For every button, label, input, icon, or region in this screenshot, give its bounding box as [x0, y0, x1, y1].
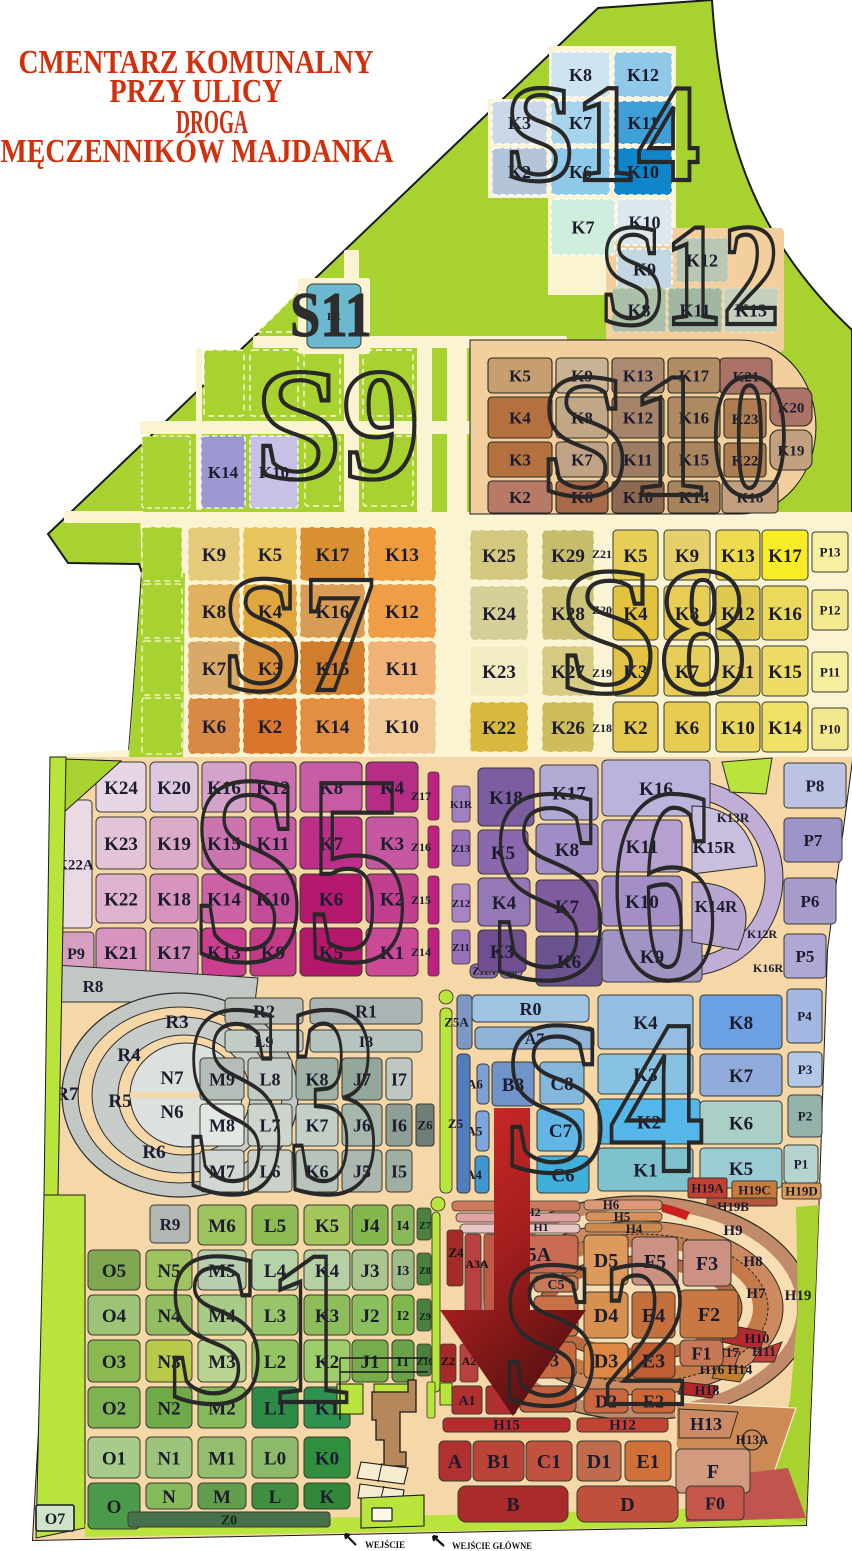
svg-text:P5: P5	[796, 947, 815, 966]
svg-text:S12: S12	[600, 194, 780, 356]
svg-text:S7: S7	[222, 541, 375, 727]
svg-text:F: F	[707, 1461, 719, 1483]
svg-text:N1: N1	[157, 1448, 180, 1469]
svg-text:P7: P7	[804, 831, 823, 850]
svg-text:H11: H11	[752, 1345, 776, 1360]
svg-text:K7: K7	[729, 1066, 754, 1087]
svg-text:A1: A1	[458, 1394, 475, 1409]
svg-text:B1: B1	[487, 1451, 510, 1473]
svg-text:MĘCZENNIKÓW MAJDANKA: MĘCZENNIKÓW MAJDANKA	[1, 132, 394, 170]
svg-text:S2: S2	[500, 1218, 690, 1450]
svg-text:K14: K14	[208, 463, 239, 482]
svg-text:I6: I6	[391, 1115, 407, 1135]
svg-text:C1: C1	[537, 1451, 561, 1473]
svg-text:J1: J1	[361, 1352, 380, 1373]
svg-text:H14: H14	[728, 1363, 753, 1378]
svg-text:P4: P4	[797, 1009, 812, 1024]
svg-text:N6: N6	[160, 1102, 183, 1123]
svg-text:J3: J3	[361, 1261, 380, 1282]
svg-text:O7: O7	[45, 1511, 65, 1528]
svg-text:K15: K15	[768, 662, 802, 683]
svg-text:L0: L0	[264, 1448, 286, 1469]
svg-text:K12: K12	[385, 602, 419, 623]
svg-text:K21: K21	[104, 943, 138, 964]
svg-text:O5: O5	[102, 1261, 126, 1282]
svg-text:F0: F0	[705, 1493, 725, 1513]
svg-text:I2: I2	[397, 1309, 409, 1324]
svg-text:P1: P1	[794, 1157, 808, 1172]
svg-text:J2: J2	[361, 1306, 380, 1327]
svg-text:F1: F1	[692, 1343, 712, 1363]
svg-text:A3A: A3A	[465, 1257, 489, 1271]
svg-text:H18: H18	[695, 1384, 720, 1399]
svg-text:K: K	[320, 1487, 335, 1508]
svg-text:R6: R6	[142, 1142, 165, 1163]
svg-text:K8: K8	[729, 1013, 753, 1034]
svg-text:K0: K0	[315, 1448, 339, 1469]
svg-text:A: A	[448, 1451, 463, 1473]
svg-text:H13: H13	[690, 1414, 722, 1434]
svg-text:P8: P8	[806, 777, 825, 796]
svg-text:S10: S10	[540, 336, 790, 534]
svg-text:S1: S1	[165, 1206, 356, 1450]
svg-text:K24: K24	[104, 778, 138, 799]
svg-text:H9: H9	[723, 1223, 742, 1239]
svg-text:O3: O3	[102, 1352, 126, 1373]
svg-text:Z9: Z9	[419, 1312, 431, 1323]
svg-text:K6: K6	[729, 1113, 753, 1134]
svg-text:M: M	[213, 1487, 231, 1508]
svg-text:P11: P11	[820, 665, 840, 680]
svg-text:K24: K24	[482, 604, 516, 625]
svg-text:K13R: K13R	[717, 810, 750, 825]
svg-text:D: D	[620, 1494, 634, 1516]
svg-text:K2: K2	[509, 488, 531, 507]
svg-text:P2: P2	[798, 1109, 812, 1124]
svg-text:P3: P3	[798, 1062, 813, 1077]
svg-text:K5: K5	[509, 367, 531, 386]
svg-text:K1R: K1R	[450, 799, 473, 811]
svg-text:B: B	[506, 1494, 519, 1516]
svg-text:H8: H8	[743, 1254, 762, 1270]
svg-text:Z6: Z6	[417, 1118, 433, 1133]
svg-text:I3: I3	[397, 1264, 409, 1279]
svg-text:P6: P6	[801, 892, 820, 911]
svg-text:P12: P12	[820, 603, 841, 618]
svg-text:Z15: Z15	[411, 893, 431, 907]
svg-text:H7: H7	[746, 1286, 766, 1302]
svg-text:N7: N7	[160, 1068, 184, 1089]
svg-text:K7: K7	[571, 217, 594, 237]
svg-text:R4: R4	[117, 1045, 141, 1066]
svg-text:K3: K3	[509, 451, 531, 470]
svg-text:K17: K17	[768, 546, 802, 567]
svg-text:Z0: Z0	[221, 1514, 237, 1529]
svg-text:K16R: K16R	[753, 961, 783, 975]
svg-text:P9: P9	[67, 946, 85, 963]
svg-text:Z17: Z17	[411, 789, 431, 803]
svg-text:K22: K22	[104, 889, 138, 910]
svg-text:O2: O2	[102, 1398, 126, 1419]
svg-text:S4: S4	[502, 975, 705, 1219]
svg-text:S8: S8	[558, 531, 748, 732]
svg-text:I1: I1	[397, 1355, 409, 1370]
svg-text:K14: K14	[768, 718, 802, 739]
svg-text:K12R: K12R	[747, 927, 777, 941]
svg-text:K5: K5	[729, 1159, 753, 1180]
svg-text:S14: S14	[505, 57, 700, 211]
svg-text:K11: K11	[386, 659, 419, 680]
svg-text:H13A: H13A	[736, 1432, 769, 1447]
svg-text:Z2: Z2	[441, 1354, 455, 1368]
svg-text:Z11: Z11	[452, 942, 470, 954]
svg-text:Z12: Z12	[452, 898, 471, 910]
svg-text:H19C: H19C	[738, 1183, 771, 1198]
svg-text:WEJŚCIE: WEJŚCIE	[365, 1540, 405, 1550]
svg-text:K13: K13	[385, 545, 419, 566]
svg-text:Z8: Z8	[419, 1266, 431, 1277]
svg-text:Z5: Z5	[448, 1116, 464, 1131]
svg-text:O: O	[107, 1497, 122, 1518]
svg-text:R8: R8	[83, 977, 104, 996]
svg-text:K4: K4	[509, 409, 531, 428]
svg-text:H19D: H19D	[785, 1184, 818, 1199]
svg-text:K23: K23	[104, 834, 138, 855]
svg-text:S9: S9	[255, 335, 420, 513]
svg-text:K23: K23	[482, 662, 516, 683]
svg-text:K16: K16	[768, 604, 802, 625]
svg-text:M1: M1	[208, 1448, 235, 1469]
svg-text:I5: I5	[391, 1161, 407, 1181]
svg-text:D1: D1	[587, 1451, 611, 1473]
svg-text:I4: I4	[397, 1219, 409, 1234]
svg-text:E1: E1	[636, 1451, 659, 1473]
svg-text:K19: K19	[157, 834, 191, 855]
svg-text:K25: K25	[482, 546, 516, 567]
svg-text:Z16: Z16	[411, 840, 431, 854]
svg-text:Z4: Z4	[448, 1245, 464, 1260]
svg-text:R5: R5	[108, 1091, 131, 1112]
svg-text:I7: I7	[391, 1069, 407, 1089]
svg-text:O1: O1	[102, 1448, 126, 1469]
svg-text:WEJŚCIE GŁÓWNE: WEJŚCIE GŁÓWNE	[452, 1541, 532, 1551]
svg-text:F2: F2	[698, 1304, 720, 1326]
svg-text:Z14: Z14	[411, 945, 431, 959]
svg-text:Z13: Z13	[452, 843, 471, 855]
svg-text:N: N	[162, 1487, 176, 1508]
svg-text:F3: F3	[696, 1253, 718, 1275]
svg-text:L: L	[269, 1487, 282, 1508]
svg-text:Z5A: Z5A	[444, 1015, 469, 1030]
svg-text:P13: P13	[820, 545, 841, 560]
svg-text:Z7: Z7	[419, 1221, 431, 1232]
svg-text:K20: K20	[157, 778, 191, 799]
svg-text:H19: H19	[785, 1288, 812, 1304]
svg-text:P10: P10	[820, 722, 841, 737]
svg-text:K18: K18	[157, 889, 191, 910]
svg-text:O4: O4	[102, 1306, 127, 1327]
